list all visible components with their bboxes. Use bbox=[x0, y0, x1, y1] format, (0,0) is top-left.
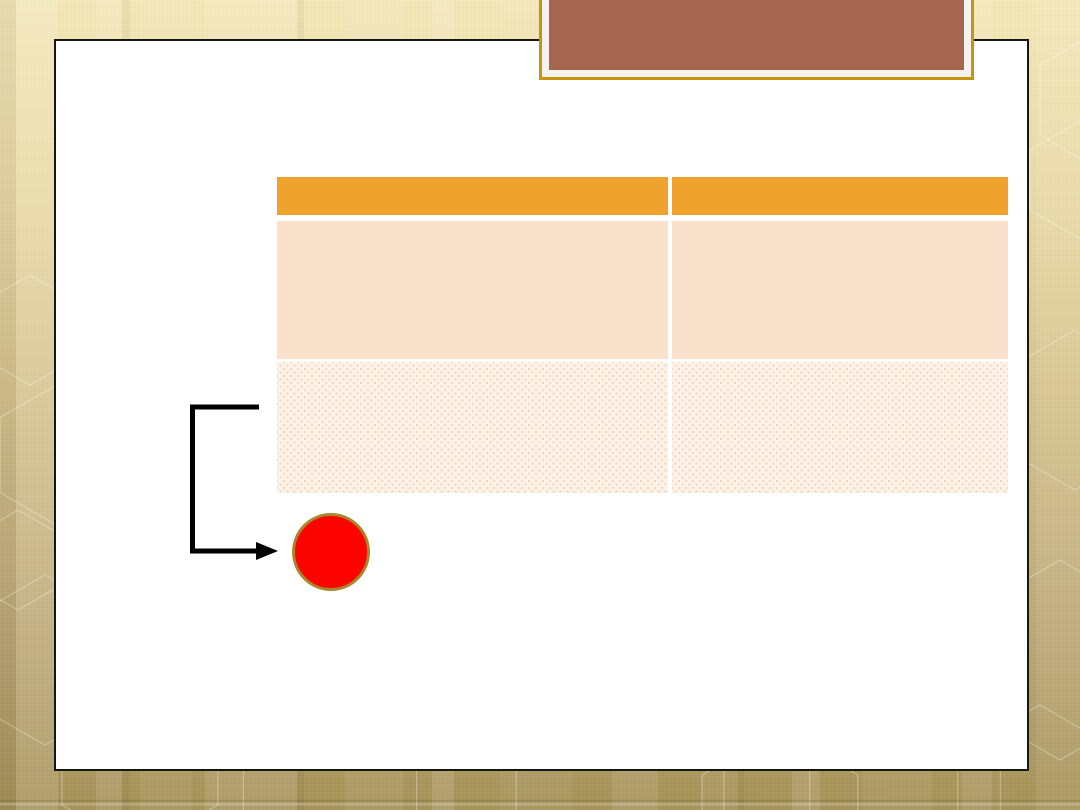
slide-table[interactable] bbox=[277, 177, 1008, 493]
table-row-2 bbox=[277, 362, 1008, 493]
slide-editor-stage bbox=[0, 0, 1080, 810]
red-circle-shape[interactable] bbox=[292, 513, 370, 591]
table-cell-r1c2[interactable] bbox=[672, 221, 1008, 359]
table-header-cell-1[interactable] bbox=[277, 177, 668, 215]
table-header-row bbox=[277, 177, 1008, 215]
table-header-cell-2[interactable] bbox=[672, 177, 1008, 215]
slide-title-text bbox=[549, 0, 964, 70]
table-row-1 bbox=[277, 221, 1008, 359]
slide-title-placeholder[interactable] bbox=[539, 0, 974, 80]
table-cell-r1c1[interactable] bbox=[277, 221, 668, 359]
table-cell-r2c2[interactable] bbox=[672, 362, 1008, 493]
table-cell-r2c1[interactable] bbox=[277, 362, 668, 493]
